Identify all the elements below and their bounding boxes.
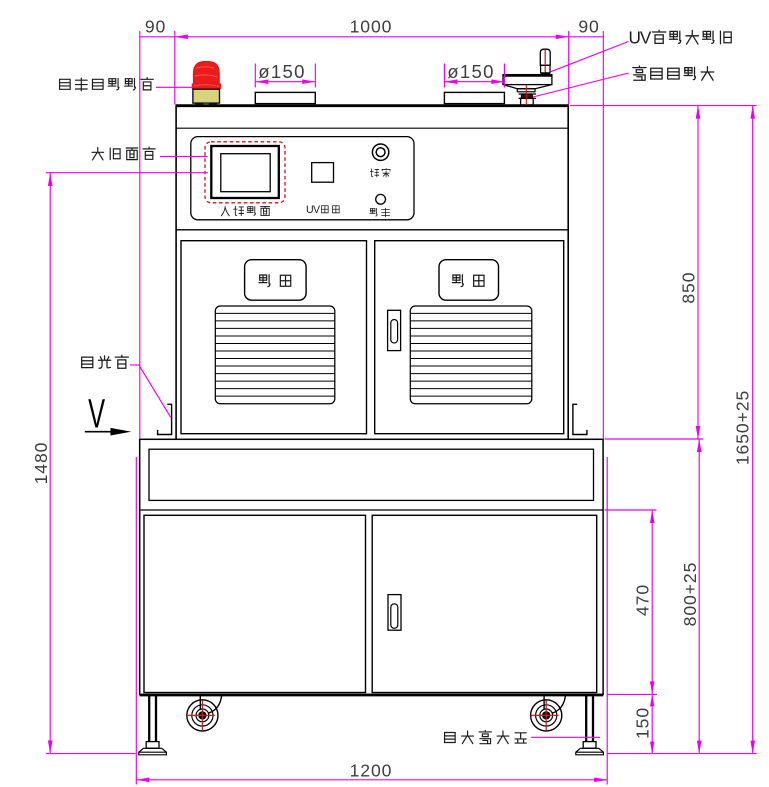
- svg-text:V: V: [313, 204, 321, 216]
- svg-text:1480: 1480: [31, 442, 51, 485]
- svg-text:V: V: [88, 391, 105, 437]
- svg-text:90: 90: [145, 17, 166, 37]
- svg-text:1650+25: 1650+25: [733, 390, 753, 465]
- svg-text:90: 90: [578, 17, 599, 37]
- svg-text:470: 470: [633, 584, 653, 616]
- svg-text:V: V: [640, 28, 652, 48]
- svg-text:ø150: ø150: [258, 61, 306, 82]
- svg-text:150: 150: [633, 707, 653, 739]
- svg-text:1200: 1200: [350, 761, 393, 781]
- svg-text:1000: 1000: [350, 17, 393, 37]
- svg-text:ø150: ø150: [447, 61, 495, 82]
- svg-text:800+25: 800+25: [680, 562, 700, 627]
- svg-text:850: 850: [679, 272, 699, 304]
